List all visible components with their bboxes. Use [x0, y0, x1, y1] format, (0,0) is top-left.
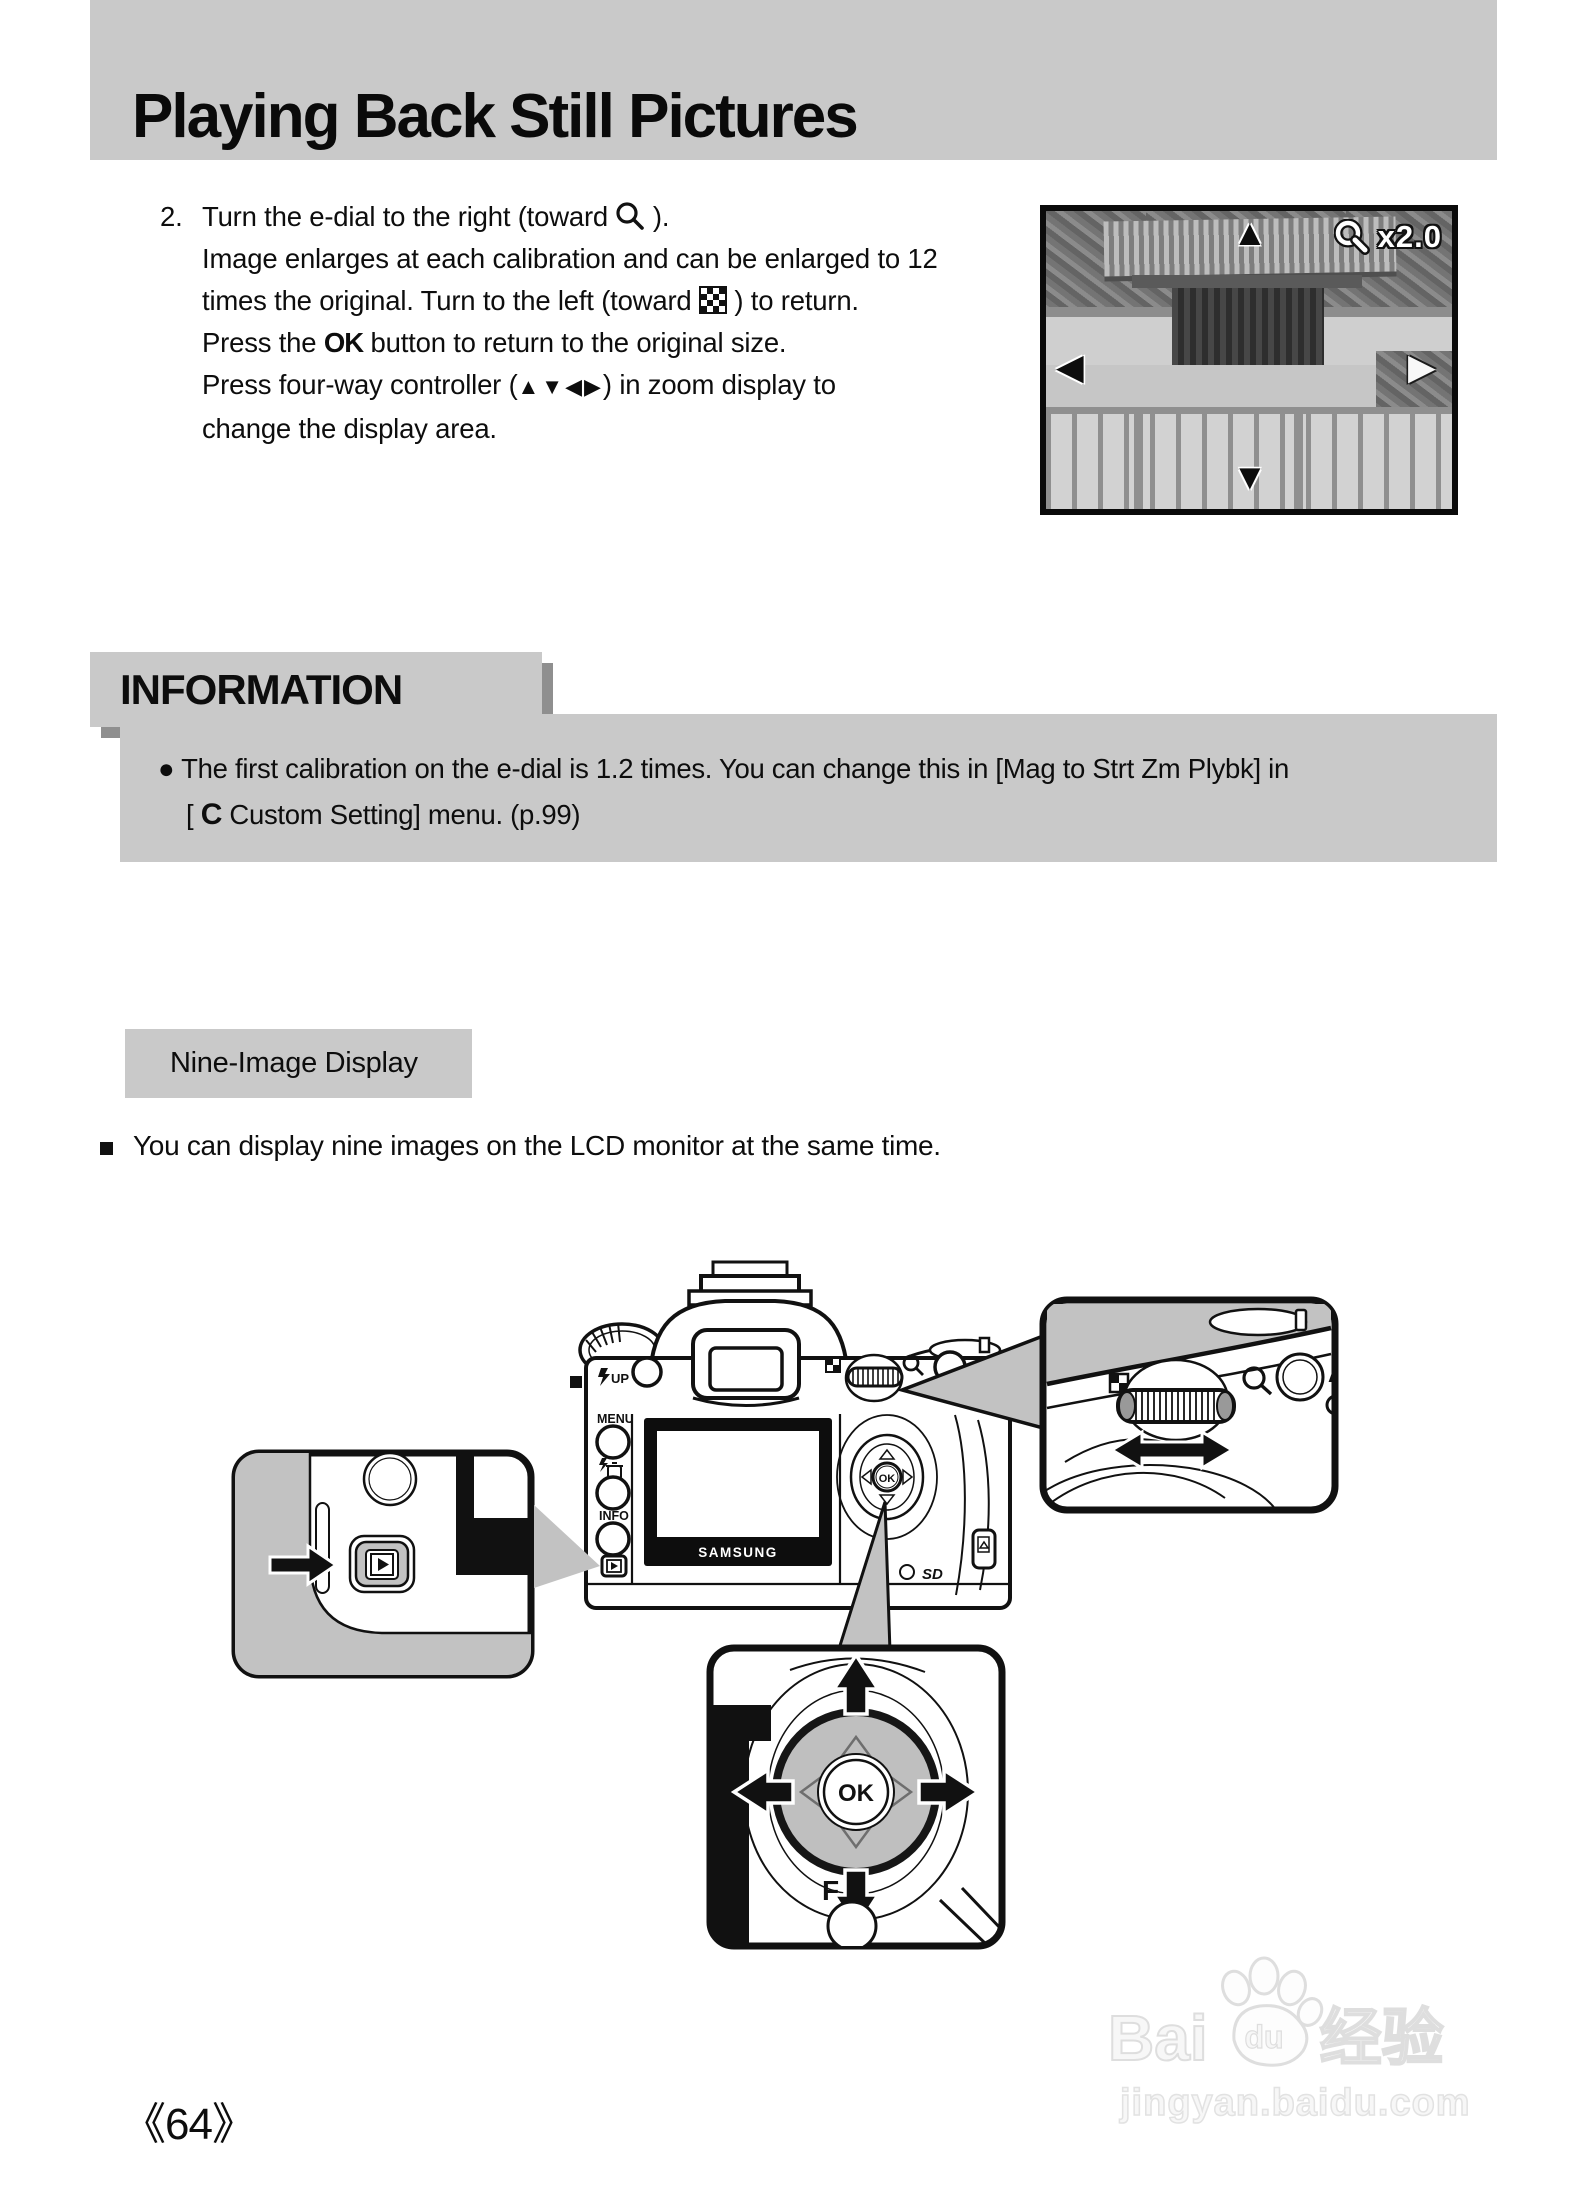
brand-label: SAMSUNG	[698, 1545, 778, 1560]
manual-page: Playing Back Still Pictures 2. Turn the …	[0, 0, 1574, 2198]
menu-button	[597, 1426, 629, 1458]
e-dial	[846, 1355, 902, 1401]
magnifier-icon	[615, 201, 645, 231]
four-way-controller-enlarged: OK	[776, 1712, 936, 1872]
flash-up-label: UP	[611, 1371, 629, 1386]
watermark-brand-cn: 经验	[1320, 2008, 1444, 2070]
ae-lock-button-enlarged	[1277, 1354, 1323, 1400]
playback-button	[602, 1556, 626, 1576]
pan-up-arrow: ▲	[1232, 215, 1268, 251]
magnifier-overlay-icon	[1334, 219, 1370, 255]
watermark-brand-right: du	[1244, 2019, 1283, 2055]
baidu-watermark: Bai du 经验 jingyan.baidu.com	[1108, 1948, 1508, 2125]
instruction-line: Press four-way controller (▲▼◀▶) in zoom…	[202, 364, 1080, 408]
watermark-brand-left: Bai	[1108, 2006, 1208, 2070]
sd-logo: SD	[922, 1566, 943, 1583]
delete-button	[597, 1477, 629, 1509]
lcd-screen	[657, 1431, 819, 1537]
nine-image-display-icon	[699, 286, 727, 314]
photo-gate-beam	[1132, 275, 1362, 288]
page-number: 《64》	[122, 2088, 255, 2152]
camera-back-diagram: UP AE-L MENU	[150, 1200, 1450, 1960]
square-bullet-icon	[100, 1142, 113, 1155]
watermark-site: jingyan.baidu.com	[1120, 2082, 1508, 2125]
menu-button-label: MENU	[597, 1412, 634, 1426]
instruction-line: Turn the e-dial to the right (toward ).	[202, 196, 1080, 238]
pan-down-arrow: ▼	[1232, 459, 1268, 495]
baidu-paw-icon: du	[1204, 1948, 1324, 2070]
section-label-nine-image-display: Nine-Image Display	[125, 1029, 472, 1098]
camera-back-illustration: UP AE-L MENU	[570, 1262, 1010, 1608]
instruction-line: change the display area.	[202, 408, 1080, 450]
custom-setting-c-glyph: C	[201, 798, 222, 831]
instruction-line: Press the OK button to return to the ori…	[202, 322, 1080, 364]
instruction-line: times the original. Turn to the left (to…	[202, 280, 1080, 322]
nine-image-display-icon	[826, 1358, 840, 1372]
step-number: 2.	[160, 196, 183, 238]
instruction-line: Image enlarges at each calibration and c…	[202, 238, 1080, 280]
nine-image-bullet-line: You can display nine images on the LCD m…	[100, 1130, 941, 1162]
pan-right-arrow: ▶	[1408, 349, 1436, 385]
pan-left-arrow: ◀	[1056, 349, 1084, 385]
lcd-playback-preview: ▲ ◀ ▶ ▼ x2.0	[1040, 205, 1458, 515]
info-button	[597, 1523, 629, 1555]
ok-button-glyph: OK	[324, 327, 363, 358]
fn-button-partial-label: F	[822, 1875, 839, 1906]
info-button-label: INFO	[599, 1509, 629, 1523]
callout-connector-bar	[456, 1518, 534, 1575]
information-line: [ C Custom Setting] menu. (p.99)	[186, 792, 1289, 838]
ok-button-label: OK	[879, 1473, 896, 1485]
zoom-indicator: x2.0	[1334, 219, 1442, 255]
page-header: Playing Back Still Pictures	[90, 0, 1497, 160]
card-door	[973, 1530, 995, 1568]
information-content-box: ● The first calibration on the e-dial is…	[120, 714, 1497, 862]
instruction-step-2: 2. Turn the e-dial to the right (toward …	[160, 196, 1080, 450]
information-line: ● The first calibration on the e-dial is…	[158, 746, 1289, 792]
page-title: Playing Back Still Pictures	[132, 81, 857, 152]
playback-button-enlarged	[350, 1536, 414, 1592]
zoom-ratio-label: x2.0	[1378, 219, 1442, 255]
callout-connector-bar	[456, 1456, 474, 1526]
fn-button-partial	[828, 1902, 876, 1950]
information-heading: INFORMATION	[120, 666, 402, 714]
four-way-arrows-glyph: ▲▼◀▶	[518, 374, 603, 399]
ok-button-label-enlarged: OK	[838, 1780, 875, 1807]
strap-lug	[570, 1376, 582, 1388]
